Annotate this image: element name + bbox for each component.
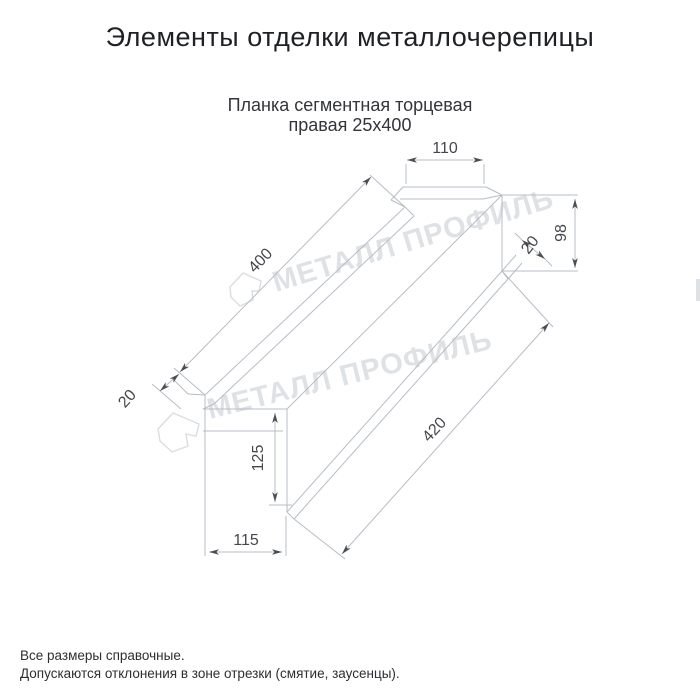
watermark-text: МЕТАЛЛ ПРОФИЛЬ <box>204 324 496 426</box>
dim-label-125: 125 <box>250 445 267 472</box>
edge-artifact <box>696 279 700 301</box>
dim-label-98: 98 <box>553 224 570 242</box>
metall-profil-logo-icon <box>158 413 199 452</box>
dim-label-420: 420 <box>419 414 450 445</box>
technical-drawing: МЕТАЛЛ ПРОФИЛЬ МЕТАЛЛ ПРОФИЛЬ <box>0 0 700 700</box>
footnotes: Все размеры справочные. Допускаются откл… <box>20 647 680 683</box>
metall-profil-logo-icon <box>230 273 261 306</box>
dim-label-110: 110 <box>432 140 458 157</box>
footnote-line1: Все размеры справочные. <box>20 647 680 665</box>
dim-label-20-left: 20 <box>115 387 140 412</box>
watermark-text: МЕТАЛЛ ПРОФИЛЬ <box>269 183 558 299</box>
dim-label-115: 115 <box>233 532 259 549</box>
footnote-line2: Допускаются отклонения в зоне отрезки (с… <box>20 665 680 683</box>
